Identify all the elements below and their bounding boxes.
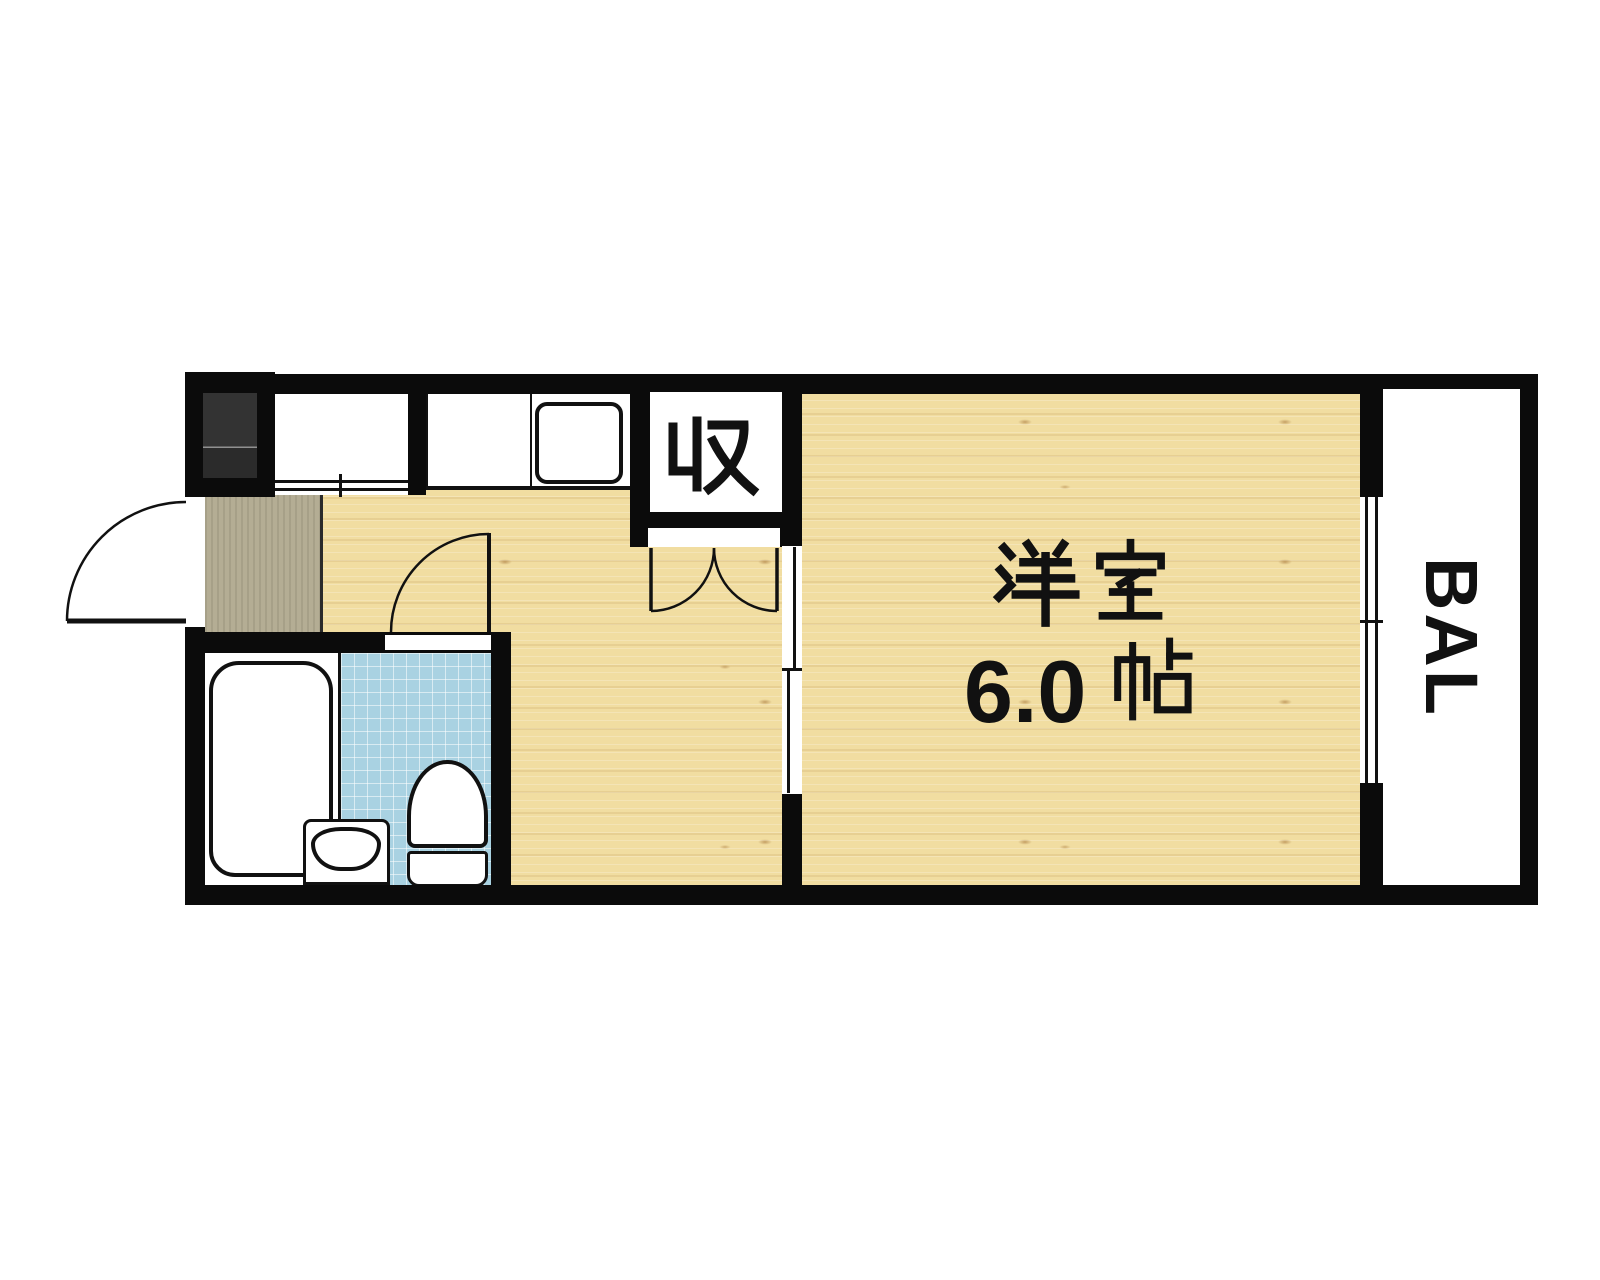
bathroom-door-arc	[391, 534, 489, 632]
closet-door-right-arc	[714, 548, 777, 611]
entrance-door-arc	[67, 502, 186, 621]
closet-door-left-arc	[651, 548, 714, 611]
doors-overlay	[0, 0, 1600, 1280]
floor-plan: 収 BAL 洋室 6.0帖	[0, 0, 1600, 1280]
